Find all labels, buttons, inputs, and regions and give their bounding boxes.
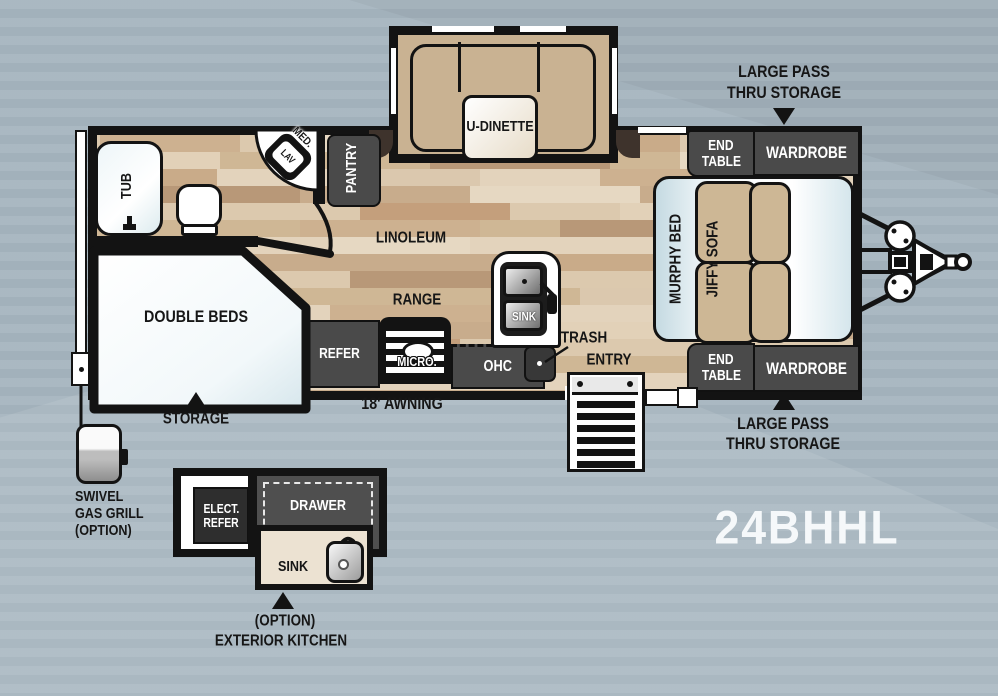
- bath-door-leaf: [258, 241, 330, 254]
- tub-label: TUB: [119, 173, 135, 199]
- micro-label: MICRO.: [397, 355, 436, 369]
- grill-label-line1: SWIVEL: [75, 489, 123, 505]
- pantry-label: PANTRY: [344, 143, 360, 193]
- hitch-assembly: [860, 214, 970, 310]
- jiffy-sofa-label: JIFFY SOFA: [706, 221, 723, 298]
- grill-label-line2: GAS GRILL: [75, 506, 144, 522]
- drawer-label: DRAWER: [290, 498, 346, 514]
- arrow-up-icon: [185, 392, 207, 409]
- pass-thru-bottom-line2: THRU STORAGE: [726, 435, 840, 453]
- murphy-bed-label: MURPHY BED: [669, 214, 686, 304]
- grill-label-line3: (OPTION): [75, 523, 132, 539]
- pass-thru-bottom-line1: LARGE PASS: [737, 415, 829, 433]
- arrow-down-icon: [773, 108, 795, 125]
- bath-door-swing: [315, 202, 331, 252]
- overlay-shapes: [0, 0, 998, 696]
- tub-faucet-stem: [127, 216, 132, 225]
- pass-thru-top-line1: LARGE PASS: [738, 63, 830, 81]
- sink-label: SINK: [512, 311, 536, 324]
- arrow-up-icon: [773, 393, 795, 410]
- double-bed: [94, 251, 306, 409]
- trash-leader-line: [545, 347, 568, 362]
- exterior-sink-icon: [326, 541, 364, 583]
- ext-kitchen-caption-line1: (OPTION): [255, 614, 315, 631]
- linoleum-label: LINOLEUM: [376, 231, 446, 248]
- sink-faucet-base: [547, 294, 557, 314]
- model-number: 24BHHL: [714, 500, 899, 555]
- u-dinette-label: U-DINETTE: [466, 119, 533, 135]
- storage-label: STORAGE: [163, 412, 229, 429]
- exterior-sink-label: SINK: [278, 559, 308, 575]
- pass-thru-top-line2: THRU STORAGE: [727, 84, 841, 102]
- ext-kitchen-caption-line2: EXTERIOR KITCHEN: [215, 634, 347, 651]
- awning-label: 18' AWNING: [361, 395, 442, 413]
- arrow-up-icon: [272, 592, 294, 609]
- entry-label: ENTRY: [586, 353, 631, 370]
- floorplan-scene: END TABLE WARDROBE END TABLE WARDROBE RE…: [0, 0, 998, 696]
- trash-label: TRASH: [561, 331, 607, 348]
- range-label: RANGE: [393, 293, 442, 310]
- double-beds-label: DOUBLE BEDS: [144, 308, 248, 326]
- lav-label: LAV: [279, 148, 298, 167]
